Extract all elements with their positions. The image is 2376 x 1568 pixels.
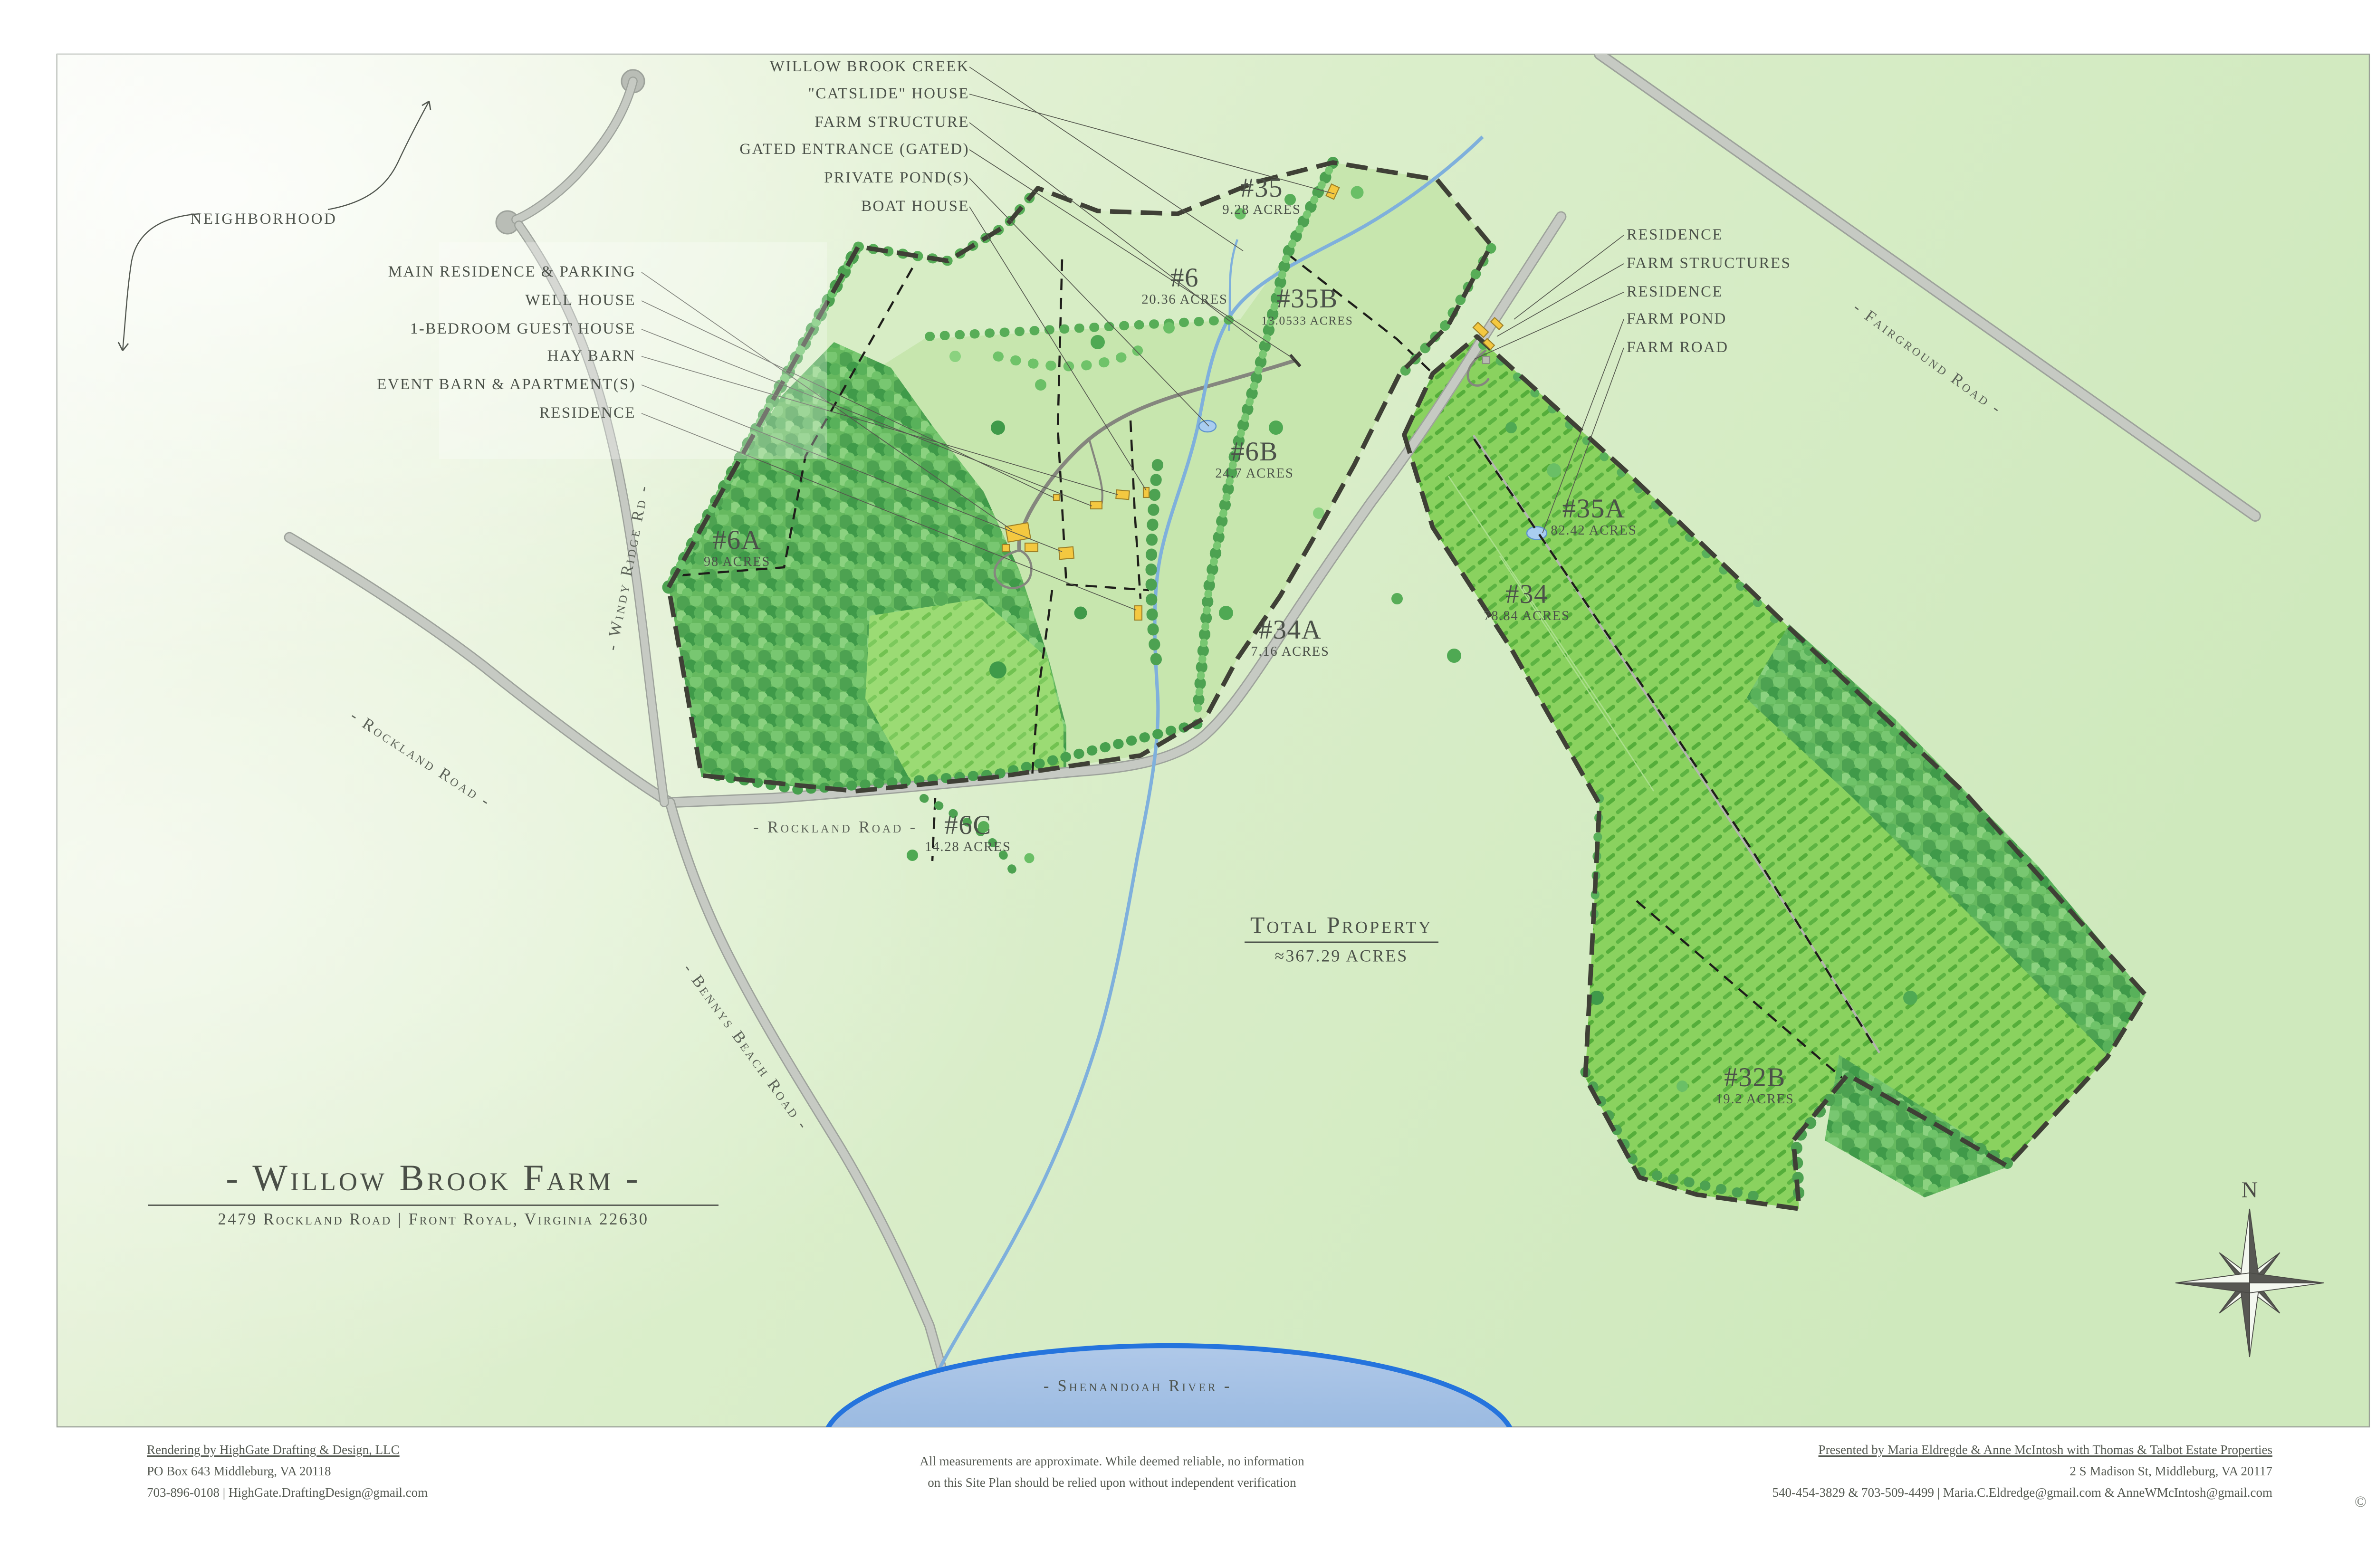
footer-renderer-name: Rendering by HighGate Drafting & Design,…	[147, 1440, 428, 1461]
title-block: - Willow Brook Farm - 2479 Rockland Road…	[148, 1157, 719, 1229]
parcel-label-35a: #35A 82.42 ACRES	[1551, 495, 1637, 540]
callout-event-barn: EVENT BARN & APARTMENT(S)	[377, 376, 636, 393]
garage	[1002, 545, 1009, 552]
parcel-label-6c: #6C 14.28 ACRES	[925, 811, 1011, 857]
page-subtitle: 2479 Rockland Road | Front Royal, Virgin…	[148, 1212, 719, 1229]
parcel-label-35b: #35B 13.0533 ACRES	[1261, 285, 1353, 328]
callout-well-house: WELL HOUSE	[525, 292, 636, 309]
guest-house	[1091, 502, 1102, 509]
well-house	[1054, 495, 1059, 500]
footer-disclaimer-block: All measurements are approximate. While …	[798, 1451, 1426, 1494]
residence-wing	[1025, 543, 1038, 552]
footer-presenter-name: Presented by Maria Eldregde & Anne McInt…	[1772, 1440, 2272, 1461]
parcel-label-35: #35 9.28 ACRES	[1222, 174, 1301, 220]
footer-presenter-address: 2 S Madison St, Middleburg, VA 20117	[1772, 1461, 2272, 1482]
private-pond	[1199, 421, 1216, 432]
footer-presenter-block: Presented by Maria Eldregde & Anne McInt…	[1772, 1440, 2272, 1504]
callout-willow-brook-creek: WILLOW BROOK CREEK	[770, 58, 969, 76]
river-label: - Shenandoah River -	[1044, 1378, 1232, 1396]
gray-shed	[1483, 356, 1490, 363]
event-barn	[1059, 547, 1074, 560]
footer-disclaimer-line2: on this Site Plan should be relied upon …	[798, 1472, 1426, 1494]
callout-residence-west: RESIDENCE	[539, 405, 636, 422]
callout-farm-structure: FARM STRUCTURE	[815, 114, 970, 131]
footer: Rendering by HighGate Drafting & Design,…	[0, 1431, 2376, 1568]
callout-residence-ne2: RESIDENCE	[1627, 284, 1723, 301]
callout-farm-road: FARM ROAD	[1627, 339, 1728, 356]
footer-renderer-contact: 703-896-0108 | HighGate.DraftingDesign@g…	[147, 1482, 428, 1504]
compass-north-label: N	[2242, 1179, 2258, 1205]
parcel-label-34a: #34A 7.16 ACRES	[1251, 616, 1329, 661]
callout-residence-ne1: RESIDENCE	[1627, 227, 1723, 244]
neighborhood-label: NEIGHBORHOOD	[190, 211, 337, 228]
farm-pond	[1527, 527, 1547, 540]
parcel-label-6a: #6A 98 ACRES	[704, 526, 770, 572]
footer-presenter-contact: 540-454-3829 & 703-509-4499 | Maria.C.El…	[1772, 1482, 2272, 1504]
page-title: - Willow Brook Farm -	[148, 1157, 719, 1206]
parcel-label-32b: #32B 19.2 ACRES	[1715, 1063, 1794, 1109]
main-residence	[1006, 523, 1031, 542]
callout-farm-pond: FARM POND	[1627, 311, 1727, 328]
callout-farm-structures: FARM STRUCTURES	[1627, 255, 1791, 272]
road-label-rockland-center: - Rockland Road -	[753, 820, 918, 837]
footer-renderer-address: PO Box 643 Middleburg, VA 20118	[147, 1461, 428, 1482]
south-residence	[1135, 606, 1142, 620]
callout-boat-house: BOAT HOUSE	[861, 198, 969, 215]
footer-disclaimer-line1: All measurements are approximate. While …	[798, 1451, 1426, 1472]
callout-guest-house: 1-BEDROOM GUEST HOUSE	[410, 321, 636, 338]
parcel-label-6b: #6B 24.7 ACRES	[1215, 438, 1293, 483]
hay-barn	[1116, 490, 1129, 499]
parcel-label-6: #6 20.36 ACRES	[1141, 264, 1227, 309]
parcel-label-34: #34 78.84 ACRES	[1484, 580, 1570, 626]
copyright-icon: ©	[2355, 1494, 2366, 1511]
callout-hay-barn: HAY BARN	[547, 348, 636, 365]
footer-renderer-block: Rendering by HighGate Drafting & Design,…	[147, 1440, 428, 1504]
callout-private-ponds: PRIVATE POND(S)	[824, 170, 969, 187]
callout-gated-entrance: GATED ENTRANCE (GATED)	[739, 141, 969, 158]
callout-catslide-house: "CATSLIDE" HOUSE	[808, 86, 969, 103]
site-plan-map	[0, 0, 2376, 1568]
site-plan-page: WILLOW BROOK CREEK "CATSLIDE" HOUSE FARM…	[0, 0, 2376, 1568]
total-property-label: Total Property ≈367.29 ACRES	[1245, 912, 1438, 967]
boat-house	[1143, 488, 1149, 497]
callout-main-residence: MAIN RESIDENCE & PARKING	[388, 264, 636, 281]
